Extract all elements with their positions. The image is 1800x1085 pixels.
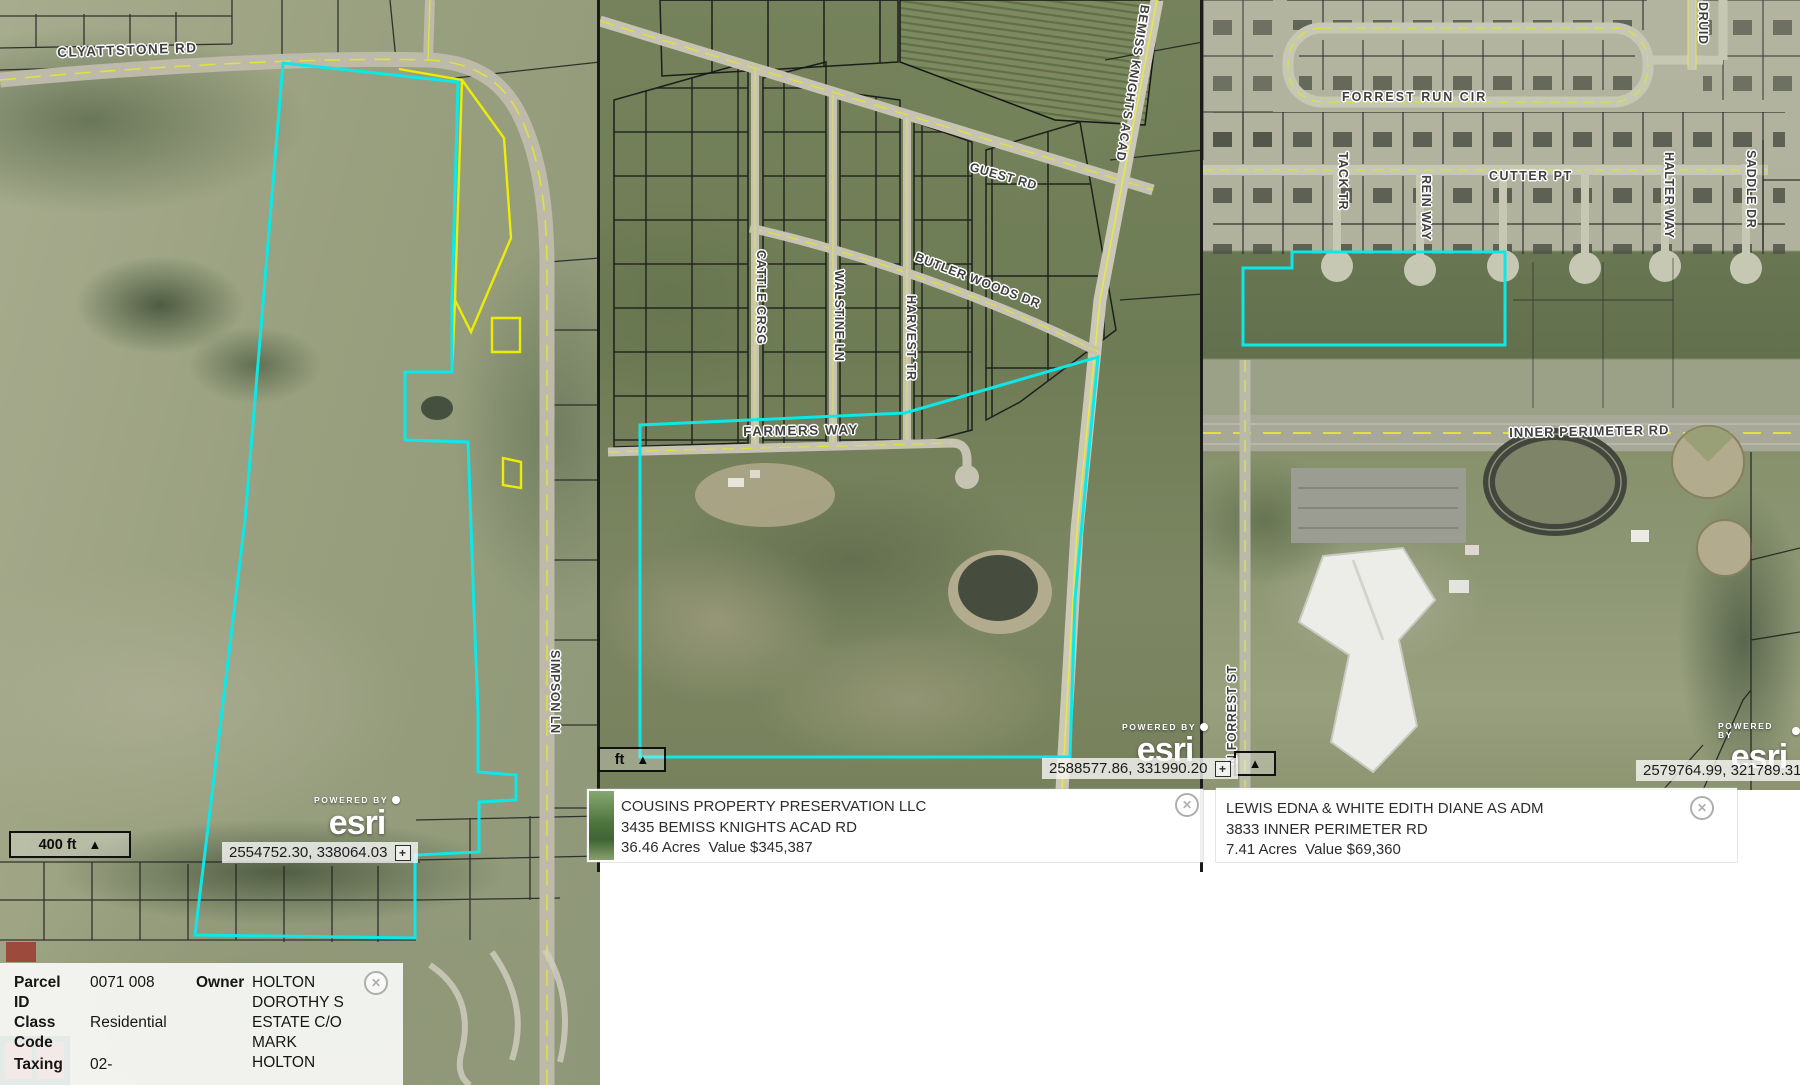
scalebar-distance: 400 ft [39, 837, 77, 853]
esri-globe-icon [392, 796, 400, 804]
map-panel-middle[interactable] [600, 0, 1203, 790]
field-value-class-code: Residential [90, 1013, 167, 1033]
field-label-class-code: Class Code [14, 1013, 78, 1053]
owner-name: COUSINS PROPERTY PRESERVATION LLC [621, 797, 926, 818]
road-centerline [0, 59, 547, 1085]
field-label-taxing: Taxing [14, 1055, 63, 1075]
close-icon[interactable]: ✕ [1690, 796, 1714, 820]
parking-lot [1291, 468, 1466, 543]
street-label-tack-tr: TACK TR [1336, 152, 1350, 210]
coordinates-value: 2579764.99, 321789.31 [1643, 762, 1800, 779]
scalebar-left: 400 ft ▲ [9, 831, 131, 858]
esri-logo-left[interactable]: POWERED BY esri [314, 796, 400, 840]
coordinates-value: 2554752.30, 338064.03 [229, 844, 388, 861]
street-label-forrest-run: FORREST RUN CIR [1342, 90, 1487, 104]
parcel-viewer-composite: CLYATTSTONE RD SIMPSON LN GUEST RD BEMIS… [0, 0, 1800, 1085]
esri-globe-icon [1792, 727, 1800, 735]
clearing [695, 463, 835, 527]
coordinates-expand-icon[interactable]: + [1215, 761, 1231, 777]
panel-seam [597, 0, 600, 872]
field-label-parcel-id: Parcel ID [14, 973, 78, 1013]
acres-value: 36.46 Acres Value $345,387 [621, 838, 926, 859]
street-label-cutter-pt: CUTTER PT [1489, 169, 1573, 183]
coordinates-expand-icon[interactable]: + [395, 845, 411, 861]
close-icon[interactable]: ✕ [1175, 793, 1199, 817]
right-map-graphics [1203, 0, 1800, 790]
coordinates-left: 2554752.30, 338064.03 + [222, 842, 418, 863]
pond [958, 555, 1038, 621]
attribution-toggle-icon[interactable]: ▲ [89, 838, 102, 851]
parcel-photo-thumbnail [589, 791, 614, 860]
simpson-ln-road [0, 59, 547, 1085]
street-label-n-forrest: N FORREST ST [1225, 665, 1239, 764]
site-address: 3833 INNER PERIMETER RD [1226, 820, 1544, 841]
scalebar-distance: ft [615, 752, 625, 768]
powered-by-text: POWERED BY [1718, 722, 1788, 739]
cul-de-sacs [1321, 250, 1762, 286]
coordinates-value: 2588577.86, 331990.20 [1049, 760, 1208, 777]
attribution-toggle-icon[interactable]: ▲ [1249, 757, 1262, 770]
parcel-info-bar-right: LEWIS EDNA & WHITE EDITH DIANE AS ADM 38… [1216, 788, 1737, 862]
pond [421, 396, 453, 420]
scalebar-middle-partial: ft ▲ [598, 747, 666, 772]
selected-parcel-outline-right [1243, 252, 1505, 345]
street-label-inner-perimeter: INNER PERIMETER RD [1509, 422, 1670, 440]
close-icon[interactable]: ✕ [364, 971, 388, 995]
esri-wordmark: esri [329, 806, 386, 840]
left-map-graphics [0, 0, 600, 1085]
street-label-walstine: WALSTINE LN [832, 270, 846, 361]
red-roof-building [6, 942, 36, 962]
street-label-farmers-way: FARMERS WAY [743, 422, 859, 439]
esri-globe-icon [1200, 723, 1208, 731]
field-label-owner: Owner [196, 973, 244, 993]
attribution-toggle-icon[interactable]: ▲ [636, 753, 649, 766]
scalebar-right-partial: ▲ [1234, 751, 1276, 776]
ball-field-2 [1697, 520, 1753, 576]
parcel-info-bar-middle: COUSINS PROPERTY PRESERVATION LLC 3435 B… [587, 789, 1203, 862]
field-value-parcel-id: 0071 008 [90, 973, 155, 993]
school-building [1299, 548, 1435, 772]
field-value-owner: HOLTON DOROTHY S ESTATE C/O MARK HOLTON [252, 973, 364, 1073]
street-label-druid: DRUID [1696, 2, 1710, 45]
coordinates-middle: 2588577.86, 331990.20 + [1042, 758, 1238, 779]
street-label-saddle-dr: SADDLE DR [1744, 150, 1758, 228]
coordinates-right: 2579764.99, 321789.31 + [1636, 760, 1800, 781]
map-panel-right[interactable] [1203, 0, 1800, 790]
street-label-simpson: SIMPSON LN [548, 650, 562, 734]
street-label-rein-way: REIN WAY [1419, 175, 1433, 240]
owner-name: LEWIS EDNA & WHITE EDITH DIANE AS ADM [1226, 799, 1544, 820]
site-address: 3435 BEMISS KNIGHTS ACAD RD [621, 818, 926, 839]
street-label-harvest: HARVEST TR [904, 295, 918, 381]
middle-map-graphics [600, 0, 1203, 790]
acres-value: 7.41 Acres Value $69,360 [1226, 840, 1544, 861]
map-panel-left[interactable] [0, 0, 600, 1085]
parcel-attribute-popup: Parcel ID 0071 008 Owner HOLTON DOROTHY … [0, 963, 403, 1085]
street-label-halter-way: HALTER WAY [1662, 152, 1676, 239]
yellow-parcel-outlines [399, 69, 521, 488]
field-value-taxing: 02- [90, 1055, 112, 1075]
street-label-cattle-crsg: CATTLE CRSG [754, 250, 768, 345]
